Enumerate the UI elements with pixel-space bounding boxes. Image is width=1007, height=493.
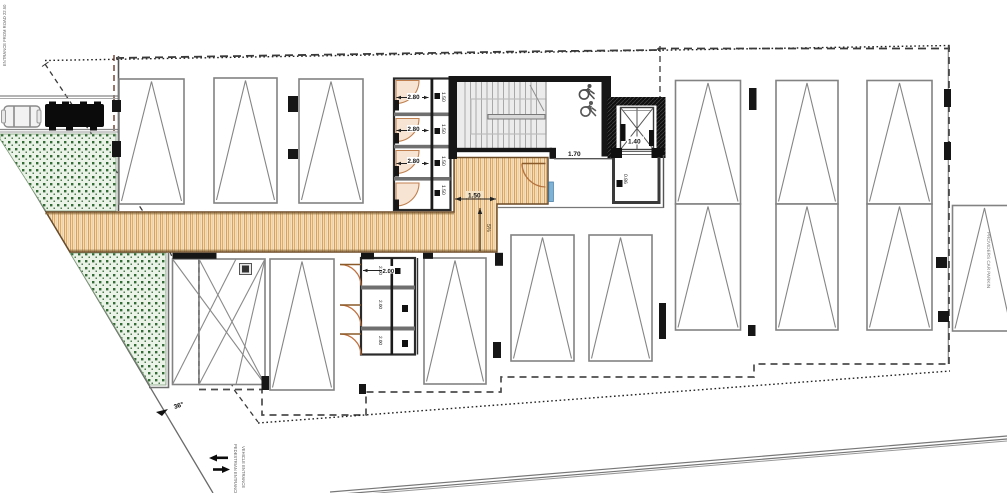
svg-text:1.50: 1.50 [440,185,446,195]
svg-text:2.80: 2.80 [408,126,421,133]
svg-text:1.70: 1.70 [568,151,581,158]
svg-text:VEHICLE ENTRANCE: VEHICLE ENTRANCE [241,446,246,488]
svg-text:1.50: 1.50 [440,92,446,102]
svg-text:1.50: 1.50 [440,124,446,134]
svg-text:2.00: 2.00 [383,268,395,275]
svg-text:2.00: 2.00 [378,266,383,275]
svg-text:2.00: 2.00 [378,336,383,345]
svg-text:0.86: 0.86 [622,174,628,184]
svg-text:36°: 36° [173,401,185,411]
svg-text:1.50: 1.50 [468,193,481,200]
svg-text:2.80: 2.80 [408,94,421,101]
svg-text:2.00: 2.00 [378,300,383,309]
svg-text:PEDESTRIAN ENTRANCE: PEDESTRIAN ENTRANCE [233,444,238,493]
svg-text:5%: 5% [485,224,491,232]
svg-text:2.80: 2.80 [408,158,421,165]
svg-text:1.50: 1.50 [440,156,446,166]
svg-text:ENTRANCE FROM ROAD 22.50: ENTRANCE FROM ROAD 22.50 [2,4,7,66]
svg-text:1.40: 1.40 [628,138,641,145]
svg-text:PROVIDERS CAR PARKIN: PROVIDERS CAR PARKIN [986,232,991,288]
